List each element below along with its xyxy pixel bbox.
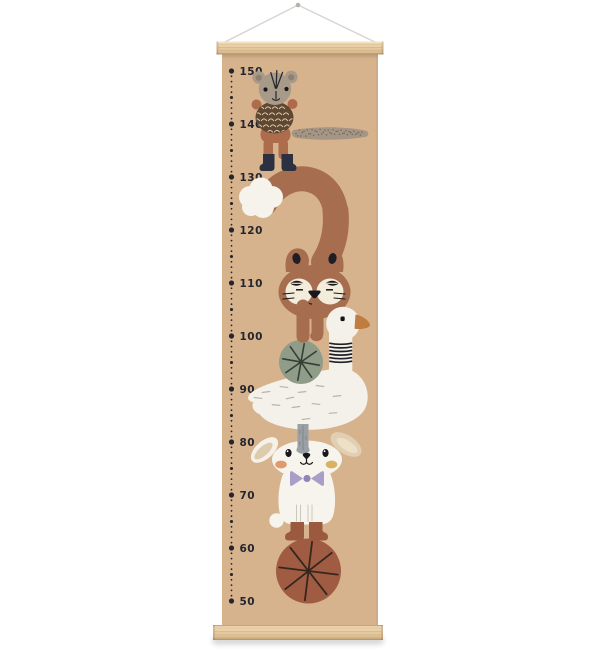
ruler-mid-tick <box>230 467 233 470</box>
ruler-minor-tick <box>231 457 233 459</box>
ruler-minor-tick <box>231 234 233 236</box>
ruler-mid-tick <box>230 149 233 152</box>
ruler-label: 50 <box>240 596 256 608</box>
ruler-minor-tick <box>231 372 233 374</box>
ruler-minor-tick <box>231 213 233 215</box>
ruler-minor-tick <box>231 91 233 93</box>
ruler-minor-tick <box>231 579 233 581</box>
ruler-minor-tick <box>231 425 233 427</box>
ruler-major-tick <box>229 545 234 550</box>
ruler-label: 70 <box>240 490 256 502</box>
ruler-minor-tick <box>231 250 233 252</box>
ruler-minor-tick <box>231 314 233 316</box>
ruler-minor-tick <box>231 261 233 263</box>
ruler-minor-tick <box>231 595 233 597</box>
ruler-minor-tick <box>231 531 233 533</box>
ruler-major-tick <box>229 174 234 179</box>
goose-head <box>326 307 360 341</box>
ruler-minor-tick <box>231 187 233 189</box>
ruler-minor-tick <box>231 346 233 348</box>
ruler-minor-tick <box>231 558 233 560</box>
ruler-major-tick <box>229 598 234 603</box>
ruler-minor-tick <box>231 446 233 448</box>
bar-cast-shadow <box>222 55 378 60</box>
ruler-minor-tick <box>231 452 233 454</box>
bow-knot <box>303 475 310 482</box>
string-right <box>298 5 378 44</box>
ruler-minor-tick <box>231 505 233 507</box>
poster-edge-shade <box>376 48 378 625</box>
ruler-minor-tick <box>231 224 233 226</box>
ruler-minor-tick <box>231 75 233 77</box>
ruler-minor-tick <box>231 208 233 210</box>
ruler-minor-tick <box>231 462 233 464</box>
ruler-major-tick <box>229 492 234 497</box>
ruler-minor-tick <box>231 240 233 242</box>
ruler-minor-tick <box>231 484 233 486</box>
rabbit-cheek-right <box>326 461 338 469</box>
ruler-minor-tick <box>231 378 233 380</box>
ruler-minor-tick <box>231 563 233 565</box>
ruler-minor-tick <box>231 515 233 517</box>
ruler-minor-tick <box>231 552 233 554</box>
ruler-major-tick <box>229 386 234 391</box>
ruler-minor-tick <box>231 272 233 274</box>
ruler-minor-tick <box>231 287 233 289</box>
ruler-minor-tick <box>231 107 233 109</box>
ruler-minor-tick <box>231 81 233 83</box>
green-segmented-ball <box>279 340 323 384</box>
ruler-minor-tick <box>231 266 233 268</box>
ruler-mid-tick <box>230 573 233 576</box>
ruler-mid-tick <box>230 414 233 417</box>
ruler-minor-tick <box>231 303 233 305</box>
ruler-minor-tick <box>231 367 233 369</box>
ruler-minor-tick <box>231 197 233 199</box>
top-wood-bar <box>217 42 384 55</box>
ruler-minor-tick <box>231 298 233 300</box>
ruler-minor-tick <box>231 510 233 512</box>
ruler-minor-tick <box>231 526 233 528</box>
ruler-minor-tick <box>231 245 233 247</box>
ruler-minor-tick <box>231 542 233 544</box>
string-left <box>222 5 298 44</box>
ruler-minor-tick <box>231 499 233 501</box>
ruler-minor-tick <box>231 584 233 586</box>
ruler-minor-tick <box>231 319 233 321</box>
acorn <box>256 102 294 134</box>
ruler-mid-tick <box>230 202 233 205</box>
ruler-minor-tick <box>231 420 233 422</box>
growth-chart-product-photo: 1501401301201101009080706050 <box>0 0 600 649</box>
ruler-mid-tick <box>230 520 233 523</box>
ruler-major-tick <box>229 68 234 73</box>
ruler-minor-tick <box>231 436 233 438</box>
ruler-mid-tick <box>230 96 233 99</box>
ruler-mid-tick <box>230 255 233 258</box>
ruler-minor-tick <box>231 340 233 342</box>
ruler-major-tick <box>229 121 234 126</box>
ruler-major-tick <box>229 333 234 338</box>
ruler-minor-tick <box>231 166 233 168</box>
nail-pin <box>296 3 301 8</box>
ruler-minor-tick <box>231 568 233 570</box>
ruler-minor-tick <box>231 134 233 136</box>
rabbit-cheek-left <box>275 461 287 469</box>
ruler-minor-tick <box>231 590 233 592</box>
ruler-minor-tick <box>231 409 233 411</box>
ruler-label: 120 <box>240 225 263 237</box>
ruler-label: 60 <box>240 543 256 555</box>
ruler-minor-tick <box>231 144 233 146</box>
ruler-minor-tick <box>231 431 233 433</box>
ruler-major-tick <box>229 280 234 285</box>
ruler-minor-tick <box>231 171 233 173</box>
ruler-minor-tick <box>231 351 233 353</box>
ruler-mid-tick <box>230 361 233 364</box>
goose-leg <box>296 424 309 454</box>
hanging-string <box>222 3 378 44</box>
rabbit-paw <box>269 513 283 527</box>
ruler-minor-tick <box>231 330 233 332</box>
ruler-minor-tick <box>231 489 233 491</box>
ruler-minor-tick <box>231 102 233 104</box>
ball-hub <box>299 360 304 365</box>
ruler-major-tick <box>229 439 234 444</box>
ruler-minor-tick <box>231 160 233 162</box>
ruler-major-tick <box>229 227 234 232</box>
ruler-minor-tick <box>231 277 233 279</box>
ruler-minor-tick <box>231 404 233 406</box>
ruler-minor-tick <box>231 86 233 88</box>
ruler-minor-tick <box>231 325 233 327</box>
ruler-label: 100 <box>240 331 263 343</box>
ball-hub <box>306 568 311 573</box>
ruler-minor-tick <box>231 219 233 221</box>
ruler-minor-tick <box>231 155 233 157</box>
ruler-mid-tick <box>230 308 233 311</box>
ruler-minor-tick <box>231 181 233 183</box>
ruler-minor-tick <box>231 383 233 385</box>
ruler-minor-tick <box>231 473 233 475</box>
ruler-minor-tick <box>231 399 233 401</box>
ruler-minor-tick <box>231 118 233 120</box>
ruler-minor-tick <box>231 128 233 130</box>
ruler-minor-tick <box>231 192 233 194</box>
ruler-label: 80 <box>240 437 256 449</box>
ruler-minor-tick <box>231 537 233 539</box>
ruler-label: 110 <box>240 278 263 290</box>
goose-eye <box>341 317 345 322</box>
ruler-minor-tick <box>231 393 233 395</box>
bottom-wood-bar <box>212 625 384 645</box>
ruler-minor-tick <box>231 139 233 141</box>
ruler-minor-tick <box>231 293 233 295</box>
ruler-minor-tick <box>231 356 233 358</box>
ruler-minor-tick <box>231 478 233 480</box>
ruler-minor-tick <box>231 113 233 115</box>
